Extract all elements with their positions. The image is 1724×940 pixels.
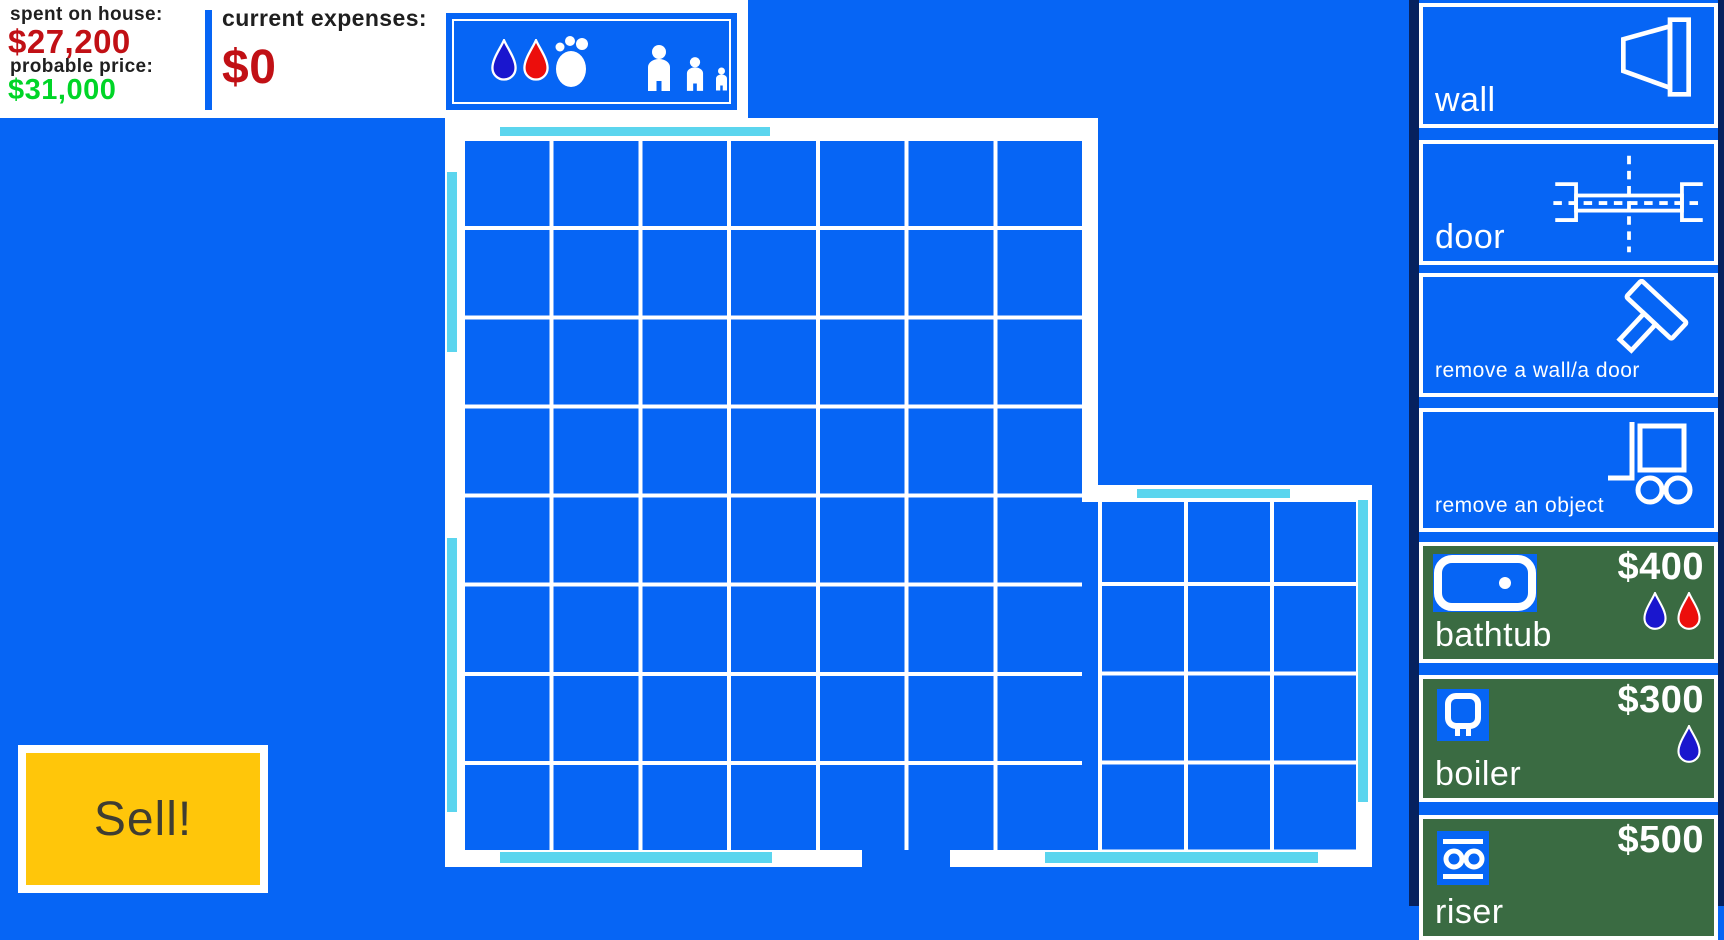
bathtub-resource-drops [1642, 592, 1702, 632]
tool-button-remove-wall-door[interactable]: remove a wall/a door [1419, 273, 1718, 397]
bathtub-price: $400 [1617, 546, 1704, 589]
boiler-icon [1437, 689, 1489, 741]
tool-button-wall-label: wall [1435, 81, 1496, 120]
item-button-boiler[interactable]: $300 boiler [1419, 675, 1718, 802]
item-button-bathtub-label: bathtub [1435, 616, 1552, 655]
stats-panel: spent on house: $27,200 probable price: … [0, 0, 748, 118]
hot-water-drop-icon [1676, 592, 1702, 632]
tool-button-remove-wall-door-label: remove a wall/a door [1435, 359, 1640, 383]
door-icon [1550, 152, 1708, 256]
current-expenses-value: $0 [222, 40, 276, 95]
wall-icon [1614, 13, 1698, 101]
sidebar-left-edge [1409, 0, 1419, 906]
floor-grid-extension[interactable] [1098, 493, 1356, 850]
window-bottom-right[interactable] [1045, 852, 1318, 863]
window-bottom-left[interactable] [500, 852, 772, 863]
indicator-panel [446, 13, 737, 110]
item-button-bathtub[interactable]: $400 bathtub [1419, 542, 1718, 663]
item-button-riser-label: riser [1435, 893, 1504, 932]
tool-button-door[interactable]: door [1419, 140, 1718, 265]
tool-button-wall[interactable]: wall [1419, 3, 1718, 128]
current-expenses-label: current expenses: [222, 5, 427, 32]
window-top[interactable] [500, 127, 770, 136]
cold-water-drop-icon [1676, 725, 1702, 765]
wall-right-upper[interactable] [1082, 118, 1098, 502]
window-left-lower[interactable] [447, 538, 457, 812]
hot-water-drop-icon [522, 39, 550, 83]
riser-price: $500 [1617, 819, 1704, 862]
hammer-icon [1602, 279, 1692, 369]
cold-water-drop-icon [1642, 592, 1668, 632]
bathtub-icon [1433, 554, 1537, 612]
item-button-boiler-label: boiler [1435, 755, 1521, 794]
item-button-riser[interactable]: $500 riser [1419, 815, 1718, 940]
floor-grid-main[interactable] [461, 137, 1082, 850]
person-small-icon [714, 67, 729, 91]
stats-divider [205, 10, 212, 110]
tool-button-remove-object-label: remove an object [1435, 494, 1604, 518]
riser-icon [1437, 831, 1489, 885]
sell-button-label: Sell! [94, 792, 192, 847]
sidebar-right-edge [1718, 0, 1724, 906]
page-root: { "colors": { "background_blue": "#0665F… [0, 0, 1724, 906]
tool-button-door-label: door [1435, 218, 1505, 257]
person-medium-icon [684, 57, 706, 91]
probable-price-value: $31,000 [8, 74, 116, 107]
window-right[interactable] [1358, 500, 1368, 802]
tool-button-remove-object[interactable]: remove an object [1419, 408, 1718, 532]
boiler-price: $300 [1617, 679, 1704, 722]
boiler-resource-drops [1676, 725, 1702, 765]
window-left-upper[interactable] [447, 172, 457, 352]
sell-button[interactable]: Sell! [18, 745, 268, 893]
hand-truck-icon [1602, 416, 1694, 508]
footprint-icon [552, 35, 592, 89]
cold-water-drop-icon [490, 39, 518, 83]
person-large-icon [644, 45, 674, 91]
window-extension-top[interactable] [1137, 489, 1290, 498]
